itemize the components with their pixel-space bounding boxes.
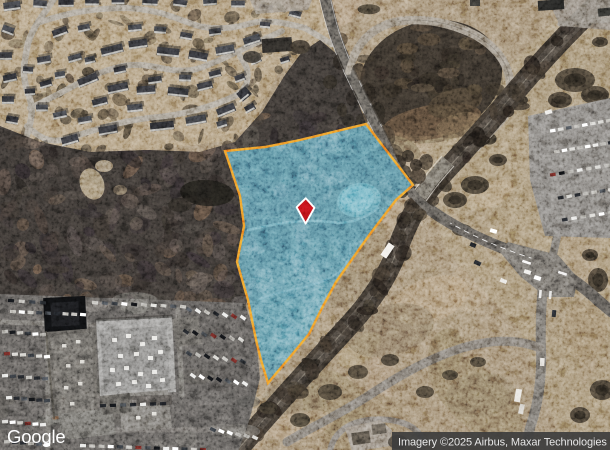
svg-text:Imagery ©2025 Airbus, Maxar Te: Imagery ©2025 Airbus, Maxar Technologies: [398, 437, 607, 449]
svg-text:Google: Google: [7, 426, 65, 447]
